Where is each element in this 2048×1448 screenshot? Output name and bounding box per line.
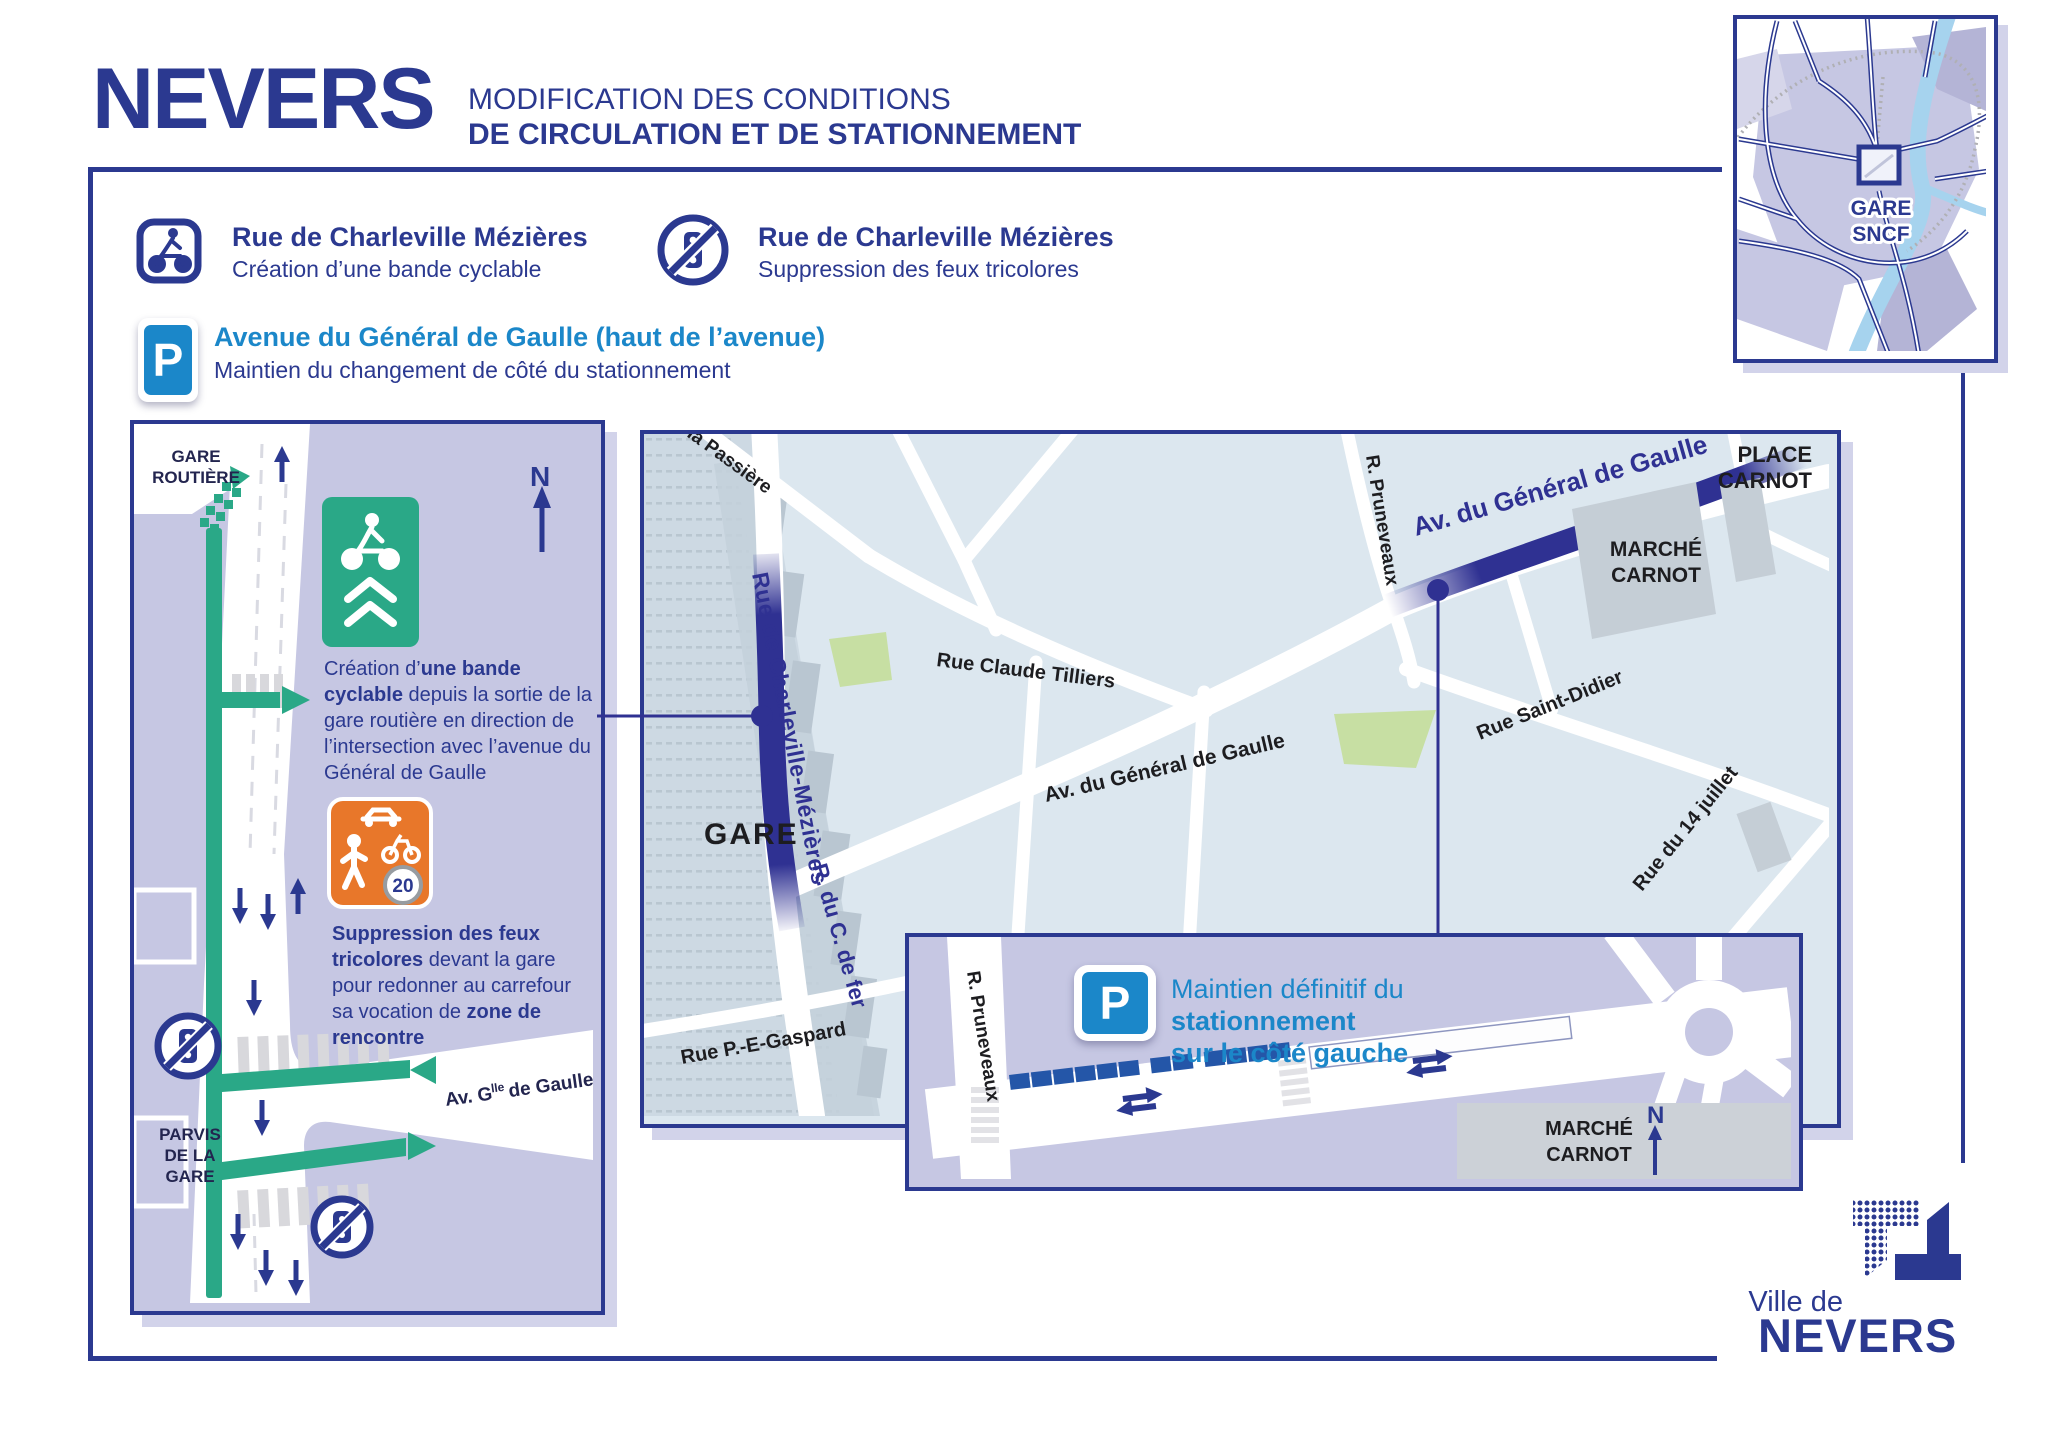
parking-inset-marche-building	[1457, 1103, 1791, 1179]
no-traffic-light-marker-1	[158, 1016, 218, 1076]
marche-carnot-label-1: MARCHÉ	[1610, 538, 1702, 561]
legend-feux-title: Rue de Charleville Mézières	[758, 222, 1114, 252]
parvis-label-3: GARE	[165, 1167, 214, 1186]
page-title-line2: DE CIRCULATION ET DE STATIONNEMENT	[468, 117, 1081, 152]
note-cyclable-pre: Création d’	[324, 658, 421, 680]
marche-carnot-label-2: CARNOT	[1611, 564, 1701, 587]
zone-rencontre-sign-icon: 20	[327, 797, 433, 909]
page-title: MODIFICATION DES CONDITIONS DE CIRCULATI…	[468, 82, 1081, 152]
footer-nevers: NEVERS	[1758, 1308, 1957, 1363]
legend-parking-title: Avenue du Général de Gaulle (haut de l’a…	[214, 322, 825, 352]
north-arrow: N	[530, 461, 551, 552]
parking-icon: P	[138, 318, 198, 402]
cycle-lane-sign-icon	[322, 497, 419, 647]
parvis-label-1: PARVIS	[159, 1125, 221, 1144]
legend-cyclable-title: Rue de Charleville Mézières	[232, 222, 588, 252]
legend-parking-subtitle: Maintien du changement de côté du statio…	[214, 356, 731, 384]
page-title-line1: MODIFICATION DES CONDITIONS	[468, 82, 1081, 117]
parking-text-bold: stationnement	[1171, 1006, 1356, 1036]
legend-feux-subtitle: Suppression des feux tricolores	[758, 255, 1079, 283]
parking-inset-panel: MARCHÉ CARNOT R. Pruneveaux N P Maintien…	[905, 933, 1803, 1191]
north-arrow-letter: N	[530, 461, 550, 492]
bike-lane-icon	[136, 218, 202, 284]
frame-left-line	[88, 167, 93, 1361]
parking-text-line2: sur le côté gauche	[1171, 1038, 1408, 1068]
svg-text:lle: lle	[490, 1080, 505, 1096]
parking-inset-p-icon: P	[1074, 965, 1156, 1041]
legend-cyclable-subtitle: Création d’une bande cyclable	[232, 255, 541, 283]
note-feux: Suppression des feux tricolores devant l…	[332, 921, 584, 1051]
gare-routiere-label-2: ROUTIÈRE	[152, 468, 240, 487]
frame-top-line	[88, 167, 1722, 172]
parking-inset-marche-label-1: MARCHÉ	[1545, 1117, 1633, 1140]
frame-bottom-line	[88, 1356, 1717, 1361]
no-traffic-light-marker-2	[314, 1199, 370, 1255]
gare-label: GARE	[704, 818, 799, 851]
city-logo-text: NEVERS	[92, 50, 434, 149]
parking-inset-p-letter: P	[1082, 972, 1148, 1034]
parking-text-pre: Maintien définitif du	[1171, 974, 1404, 1004]
parking-icon-letter: P	[144, 325, 192, 395]
no-traffic-light-icon	[655, 212, 731, 288]
nevers-logo-mark	[1843, 1186, 1968, 1286]
parking-inset-marche-label-2: CARNOT	[1546, 1144, 1632, 1166]
note-cyclable: Création d’une bande cyclable depuis la …	[324, 656, 592, 786]
place-carnot-label-1: PLACE	[1737, 442, 1812, 467]
sign-20-label: 20	[392, 876, 413, 897]
gare-routiere-label-1: GARE	[171, 447, 220, 466]
parking-inset-north-letter: N	[1647, 1102, 1664, 1129]
place-carnot-label-2: CARNOT	[1718, 468, 1813, 493]
overview-inset-map: GARE SNCF	[1737, 19, 1986, 351]
parvis-label-2: DE LA	[165, 1146, 216, 1165]
overview-inset-panel: GARE SNCF	[1733, 15, 1998, 363]
overview-gare-label-1: GARE	[1851, 197, 1912, 220]
station-detail-panel: GARE ROUTIÈRE PARVIS DE LA GARE Av. G ll…	[130, 420, 605, 1315]
overview-gare-label-2: SNCF	[1852, 223, 1909, 246]
parking-inset-text: Maintien définitif du stationnement sur …	[1171, 973, 1591, 1069]
